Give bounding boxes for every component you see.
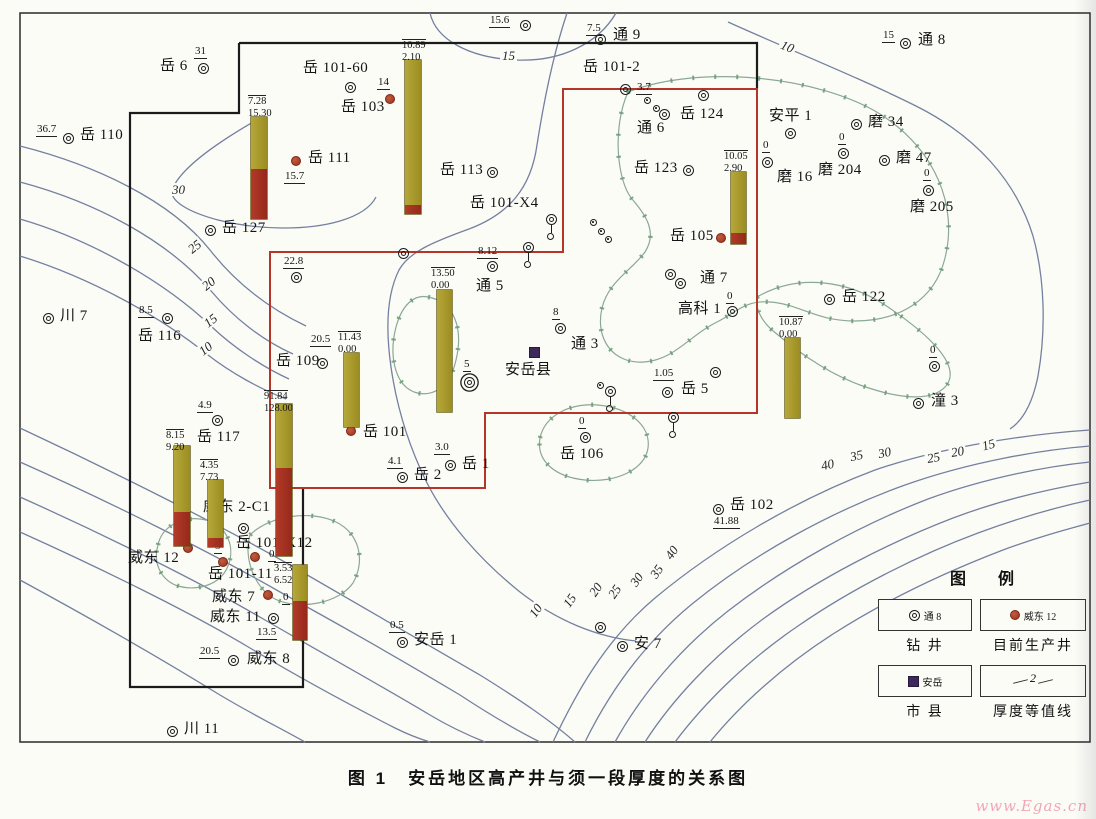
production-bar-gas-segment (437, 290, 452, 412)
well-label: 岳 101-2 (583, 60, 640, 76)
well-marker (713, 504, 724, 515)
well-label: 磨 34 (868, 115, 904, 131)
thickness-value: 3.0 (434, 442, 450, 455)
well-marker (212, 415, 223, 426)
well-label: 岳 123 (634, 161, 678, 177)
thickness-value: 0 (762, 140, 770, 153)
well-label: 通 8 (918, 33, 946, 49)
well-marker (487, 167, 498, 178)
well-label: 岳 117 (197, 430, 240, 446)
well-label: 通 6 (637, 121, 665, 137)
well-marker-triple (464, 377, 475, 388)
small-well-marker (653, 105, 660, 112)
thickness-value: 3.7 (636, 82, 652, 95)
well-marker (851, 119, 862, 130)
well-marker (923, 185, 934, 196)
well-label: 岳 110 (80, 128, 123, 144)
well-label: 威东 12 (128, 551, 179, 567)
well-label: 岳 2 (414, 468, 442, 484)
well-label: 岳 101-X4 (470, 196, 539, 212)
well-label: 岳 102 (730, 498, 774, 514)
well-marker (580, 432, 591, 443)
production-bar-gas-segment (344, 353, 359, 427)
well-marker (879, 155, 890, 166)
well-marker (445, 460, 456, 471)
thickness-value: 8.12 (477, 246, 498, 259)
thickness-value: 7.5 (586, 23, 602, 36)
producing-well-marker (716, 233, 726, 243)
well-label: 威东 8 (247, 652, 290, 668)
well-label: 川 11 (184, 722, 219, 738)
production-bar-values: 10.870.00 (779, 316, 803, 341)
well-label: 岳 122 (842, 290, 886, 306)
production-bar-values: 7.2815.30 (248, 95, 272, 120)
well-label: 川 7 (60, 309, 88, 325)
contour-label: 30 (875, 444, 894, 460)
well-label: 通 5 (476, 279, 504, 295)
well-label: 通 3 (571, 337, 599, 353)
contour-label: 15 (200, 310, 221, 331)
producing-well-marker (263, 590, 273, 600)
well-label: 安岳县 (505, 363, 552, 379)
well-marker (665, 269, 676, 280)
well-marker (913, 398, 924, 409)
contour-label: 10 (777, 37, 798, 55)
contour-label: 20 (198, 273, 219, 294)
thickness-value: 20.5 (310, 334, 331, 347)
contour-label: 35 (847, 447, 866, 463)
deviation-target-icon (606, 405, 613, 412)
production-bar-red-segment (174, 512, 190, 546)
contour-label: 25 (924, 450, 943, 466)
well-label: 磨 205 (910, 200, 954, 216)
legend-item-drilled-well: 通 8 钻 井 (878, 599, 972, 655)
well-marker (595, 622, 606, 633)
thickness-value: 0 (578, 416, 586, 429)
thickness-value: 20.5 (199, 646, 220, 659)
drilled-well-icon (909, 610, 920, 621)
legend: 图 例 通 8 钻 井 威东 12 目前生产井 安岳 (878, 565, 1086, 721)
small-well-marker (605, 236, 612, 243)
producing-well-marker (250, 552, 260, 562)
production-bar-values: 13.500.00 (431, 267, 455, 292)
thickness-value: 0 (923, 168, 931, 181)
small-well-marker (644, 97, 651, 104)
thickness-value: 15 (882, 30, 895, 43)
well-label: 岳 116 (138, 329, 181, 345)
legend-example: 威东 12 (1024, 608, 1057, 623)
production-bar-values: 3.536.52 (274, 562, 292, 587)
well-marker (620, 84, 631, 95)
well-marker (900, 38, 911, 49)
well-label: 岳 103 (341, 100, 385, 116)
thickness-value: 0 (838, 132, 846, 145)
well-marker (43, 313, 54, 324)
well-label: 威东 11 (210, 610, 261, 626)
production-bar (785, 338, 800, 418)
legend-label: 钻 井 (878, 635, 972, 655)
thickness-value: 15.7 (284, 171, 305, 184)
production-bar (437, 290, 452, 412)
production-bar-red-segment (293, 601, 307, 640)
production-bar-values: 4.357.73 (200, 459, 218, 484)
production-bar (208, 480, 223, 547)
well-marker (698, 90, 709, 101)
well-marker (397, 472, 408, 483)
well-marker (167, 726, 178, 737)
contour-label: 15 (979, 436, 999, 453)
well-label: 磨 47 (896, 151, 932, 167)
well-label: 岳 109 (276, 354, 320, 370)
thickness-value: 15.6 (489, 15, 510, 28)
production-bar (251, 117, 267, 219)
well-label: 通 7 (700, 271, 728, 287)
legend-item-city: 安岳 市 县 (878, 665, 972, 721)
legend-example: 2 (1028, 671, 1038, 686)
well-label: 安平 1 (769, 109, 812, 125)
well-marker (198, 63, 209, 74)
well-marker (617, 641, 628, 652)
production-bar-gas-segment (405, 60, 421, 205)
thickness-value: 0 (929, 345, 937, 358)
well-label: 磨 16 (777, 170, 813, 186)
deviated-well-marker (605, 386, 616, 397)
small-well-marker (598, 228, 605, 235)
well-label: 岳 101-60 (303, 61, 368, 77)
well-marker (345, 82, 356, 93)
thickness-value: 31 (194, 46, 207, 59)
production-bar (293, 565, 307, 640)
thickness-value: 0 (282, 592, 290, 605)
well-marker (555, 323, 566, 334)
well-marker (487, 261, 498, 272)
production-bar-values: 8.159.20 (166, 429, 184, 454)
well-label: 岳 111 (308, 151, 351, 167)
contour-label: 15 (500, 49, 517, 62)
contour-label: 10 (195, 338, 216, 359)
thickness-contour-icon: 2 (1013, 674, 1053, 689)
deviated-well-marker (546, 214, 557, 225)
well-label: 岳 1 (462, 457, 490, 473)
watermark: www.Egas.cn (975, 797, 1088, 815)
well-marker (63, 133, 74, 144)
well-marker (268, 613, 279, 624)
well-marker (398, 248, 409, 259)
production-bar (405, 60, 421, 214)
legend-grid: 通 8 钻 井 威东 12 目前生产井 安岳 市 县 (878, 599, 1086, 721)
contour-label: 15 (559, 590, 579, 611)
small-well-marker (590, 219, 597, 226)
contour-label: 25 (604, 581, 624, 602)
thickness-value: 41.88 (713, 516, 740, 529)
thickness-value: 4.9 (197, 400, 213, 413)
well-label: 岳 127 (222, 221, 266, 237)
well-marker (838, 148, 849, 159)
production-bar-values: 91.84128.00 (264, 390, 293, 415)
thickness-value: 4.1 (387, 456, 403, 469)
production-bar-values: 10.052.90 (724, 150, 748, 175)
well-marker (291, 272, 302, 283)
well-marker (683, 165, 694, 176)
well-marker (205, 225, 216, 236)
production-bar (174, 446, 190, 546)
production-bar-values: 11.430.00 (338, 331, 361, 356)
legend-example: 通 8 (924, 608, 942, 623)
well-marker (675, 278, 686, 289)
legend-example: 安岳 (923, 674, 943, 689)
well-marker (238, 523, 249, 534)
producing-well-marker (291, 156, 301, 166)
thickness-value: 5 (463, 359, 471, 372)
well-marker (762, 157, 773, 168)
well-label: 通 9 (613, 28, 641, 44)
production-bar-gas-segment (251, 117, 267, 169)
contour-label: 25 (184, 236, 205, 257)
thickness-value: 8.5 (138, 305, 154, 318)
well-label: 潼 3 (931, 394, 959, 410)
scan-shadow (1074, 0, 1096, 819)
deviated-well-marker (668, 412, 679, 423)
well-label: 岳 6 (160, 59, 188, 75)
well-marker (785, 128, 796, 139)
well-label: 威东 7 (212, 590, 255, 606)
production-bar (276, 404, 292, 556)
contour-label: 20 (585, 579, 605, 600)
production-bar-values: 10.892.10 (402, 39, 426, 64)
thickness-value: 0 (726, 291, 734, 304)
well-marker (520, 20, 531, 31)
production-bar-gas-segment (174, 446, 190, 512)
well-marker (228, 655, 239, 666)
contour-label: 10 (525, 600, 545, 621)
deviated-well-marker (523, 242, 534, 253)
well-label: 安岳 1 (414, 633, 457, 649)
producing-well-marker (346, 426, 356, 436)
legend-label: 市 县 (878, 701, 972, 721)
producing-well-marker (385, 94, 395, 104)
legend-item-thickness-contour: 2 厚度等值线 (980, 665, 1086, 721)
contour-label: 40 (818, 456, 837, 472)
city-icon (908, 676, 919, 687)
figure-map-anyue-thickness: 岳 631岳 11036.7岳 101-60岳 10314岳 11115.715… (0, 0, 1096, 819)
well-label: 岳 106 (560, 447, 604, 463)
well-label: 岳 105 (670, 229, 714, 245)
thickness-value: 0.5 (389, 620, 405, 633)
well-marker (662, 387, 673, 398)
contour-label: 30 (170, 183, 187, 196)
contour-label: 35 (646, 561, 666, 582)
production-bar-red-segment (276, 468, 292, 556)
well-label: 岳 101-11 (208, 567, 273, 583)
figure-caption: 图 1 安岳地区高产井与须一段厚度的关系图 (0, 764, 1096, 789)
well-marker (727, 306, 738, 317)
well-label: 岳 124 (680, 107, 724, 123)
production-bar-gas-segment (731, 172, 746, 233)
well-label: 岳 5 (681, 382, 709, 398)
deviation-target-icon (547, 233, 554, 240)
well-marker (162, 313, 173, 324)
well-label: 磨 204 (818, 163, 862, 179)
production-bar-gas-segment (785, 338, 800, 418)
thickness-value: 14 (377, 77, 390, 90)
producing-well-icon (1010, 610, 1020, 620)
contour-label: 40 (661, 542, 681, 563)
thickness-value: 22.8 (283, 256, 304, 269)
production-bar-red-segment (731, 233, 746, 244)
well-label: 高科 1 (678, 302, 721, 318)
deviation-target-icon (669, 431, 676, 438)
well-marker (397, 637, 408, 648)
well-marker (659, 109, 670, 120)
well-marker (710, 367, 721, 378)
production-bar (344, 353, 359, 427)
well-label: 岳 101 (363, 425, 407, 441)
production-bar-gas-segment (293, 565, 307, 601)
legend-title: 图 例 (878, 565, 1086, 589)
production-bar-red-segment (251, 169, 267, 219)
thickness-value: 8 (552, 307, 560, 320)
legend-item-producing-well: 威东 12 目前生产井 (980, 599, 1086, 655)
thickness-value: 36.7 (36, 124, 57, 137)
well-marker (824, 294, 835, 305)
legend-label: 目前生产井 (980, 635, 1086, 655)
contour-label: 20 (948, 444, 967, 460)
thickness-value: 0 (268, 549, 276, 562)
city-marker (529, 347, 540, 358)
well-label: 安 7 (634, 637, 662, 653)
production-bar-gas-segment (208, 480, 223, 538)
contour-label: 30 (626, 569, 646, 590)
deviation-target-icon (524, 261, 531, 268)
production-bar (731, 172, 746, 244)
production-bar-red-segment (405, 205, 421, 214)
small-well-marker (597, 382, 604, 389)
legend-label: 厚度等值线 (980, 701, 1086, 721)
well-marker (929, 361, 940, 372)
production-bar-red-segment (208, 538, 223, 547)
thickness-value: 13.5 (256, 627, 277, 640)
thickness-value: 1.05 (653, 368, 674, 381)
well-label: 岳 113 (440, 163, 483, 179)
